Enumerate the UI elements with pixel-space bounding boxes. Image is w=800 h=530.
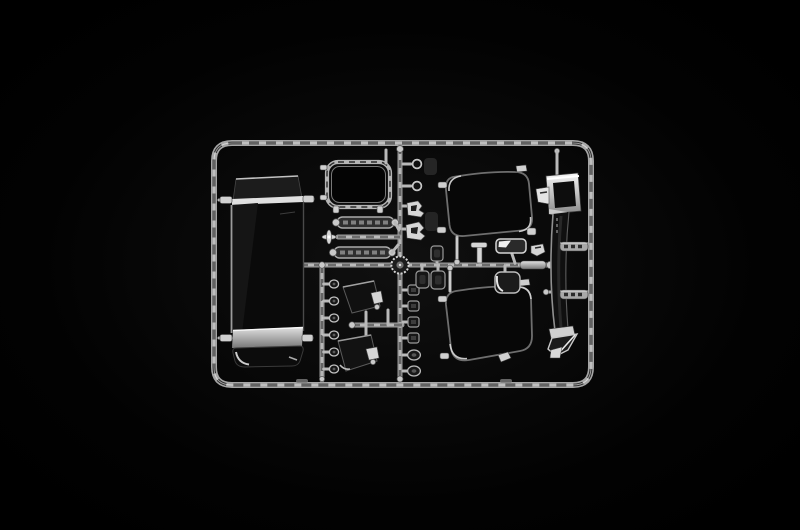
faint-part-reflection: [425, 212, 438, 231]
sprue-photo-canvas: [0, 0, 800, 530]
strip-part-upper: [332, 217, 399, 230]
windshield-tab: [302, 335, 313, 342]
windshield-tab: [303, 196, 314, 203]
runner-hub: [391, 256, 408, 273]
deflector-tie: [560, 290, 588, 299]
windshield-part: [219, 176, 314, 367]
windshield-tab: [220, 335, 232, 342]
bright-bar-part: [520, 261, 554, 269]
deflector-hook: [536, 187, 549, 204]
gate-dot: [349, 322, 355, 328]
deflector-chrome-window: [553, 181, 576, 208]
product-photo: [0, 0, 800, 530]
faint-part-reflection: [424, 158, 437, 175]
strip-part-lower: [329, 245, 398, 258]
deflector-tie: [560, 242, 588, 251]
box-part: [431, 246, 443, 262]
windshield-tab: [220, 197, 232, 204]
